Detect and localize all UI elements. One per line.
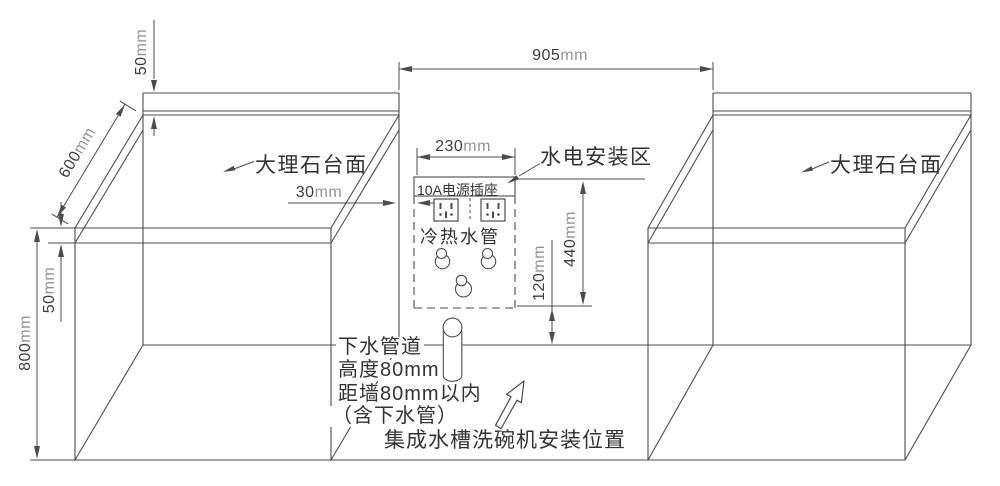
drain-note-line4: （含下水管） — [330, 406, 460, 427]
drain-note-line1: 下水管道 — [336, 337, 424, 358]
right-countertop-label: 大理石台面 — [830, 149, 943, 179]
pipes-label: 冷热水管 — [420, 223, 500, 249]
water-pipe-icon — [481, 249, 495, 269]
leader-right-counter — [801, 162, 829, 173]
drain-note-line2: 高度80mm — [336, 360, 442, 381]
dim-label-gap-width: 905mm — [532, 47, 588, 65]
install-position-note: 集成水槽洗碗机安装位置 — [382, 430, 628, 451]
dim-cabinet-height — [30, 229, 75, 460]
left-countertop-label: 大理石台面 — [255, 149, 368, 179]
dim-label-socket-offset: 30mm — [296, 184, 342, 202]
leader-utility-zone — [507, 164, 540, 184]
dim-label-zone-width: 230mm — [435, 138, 491, 156]
dim-label-backsplash-height: 50mm — [133, 29, 151, 75]
leader-left-counter — [223, 162, 254, 173]
installation-diagram: 905mm 50mm 600mm 50mm 800mm 30mm 230mm 4… — [0, 0, 1000, 486]
socket-label: 10A电源插座 — [417, 180, 498, 200]
water-pipe-icon — [435, 249, 449, 269]
drain-note-line3: 距墙80mm以内 — [336, 384, 484, 405]
dim-backsplash-height — [151, 20, 157, 136]
dim-label-countertop-edge: 50mm — [41, 267, 59, 313]
dim-gap-width — [399, 62, 713, 90]
install-position-arrow-icon — [496, 381, 525, 429]
power-socket-icon — [481, 199, 505, 221]
utility-zone-label: 水电安装区 — [540, 141, 653, 171]
drain-pipe-icon — [443, 318, 462, 381]
dim-drain-gap — [549, 240, 555, 344]
dim-label-drain-gap: 120mm — [531, 245, 549, 301]
dim-label-cabinet-height: 800mm — [17, 315, 35, 371]
water-pipe-icon — [456, 275, 472, 297]
dim-label-zone-height: 440mm — [562, 211, 580, 267]
power-socket-icon — [434, 199, 458, 221]
